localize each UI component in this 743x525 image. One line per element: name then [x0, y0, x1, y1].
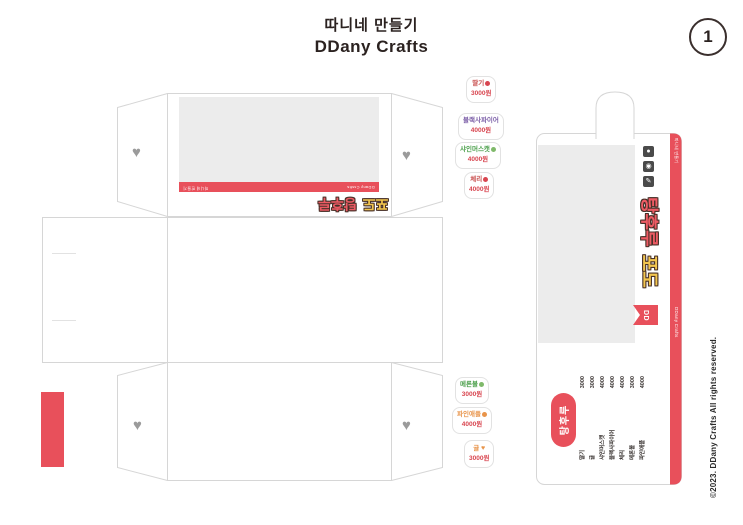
- menu-row: 딸기3000: [581, 376, 587, 460]
- lid-window: [179, 97, 379, 182]
- speech-bubble-icon: ●: [643, 146, 654, 157]
- pineapple-icon: [482, 412, 487, 417]
- muscat-icon: [491, 147, 496, 152]
- copyright-notice: ©2023. DDany Crafts All rights reserved.: [707, 328, 721, 498]
- side-stripe-top-text: 따니네 만들기: [671, 138, 682, 172]
- lid-label-grape: 포도: [363, 194, 389, 214]
- camera-icon: ◉: [643, 161, 654, 172]
- price-sticker-melon: 메론볼 3000원: [455, 377, 489, 404]
- strawberry-icon: [485, 81, 490, 86]
- page-title: 따니네 만들기 DDany Crafts: [0, 17, 743, 57]
- menu-row: 메론볼3000: [631, 376, 637, 460]
- price-sticker-strawberry: 딸기 3000원: [466, 76, 496, 103]
- page-title-english: DDany Crafts: [0, 36, 743, 57]
- cherry-icon: [483, 177, 488, 182]
- price-sticker-tangerine: 귤 ♥ 3000원: [464, 440, 494, 468]
- heart-icon: ♥: [133, 418, 142, 433]
- page-number-badge: 1: [689, 18, 727, 56]
- price-sticker-shine-muscat: 샤인머스캣 4000원: [455, 142, 501, 169]
- price-sticker-cherry: 체리 4000원: [464, 172, 494, 199]
- lid-product-label: 포도 탕후루: [318, 193, 416, 215]
- red-strip-piece: [41, 392, 64, 467]
- melon-icon: [479, 382, 484, 387]
- menu-row: 체리4000: [621, 376, 627, 460]
- price-sticker-black-sapphire: 블랙사파이어 4000원: [458, 113, 504, 140]
- heart-icon: ♥: [402, 148, 411, 163]
- menu-title: 탕후루: [551, 393, 576, 447]
- side-label-grape: 포도: [630, 255, 668, 288]
- page-title-korean: 따니네 만들기: [0, 17, 743, 36]
- side-panel-window: [538, 145, 635, 343]
- menu-row: 파인애플4000: [641, 376, 647, 460]
- lid-stripe-left-text: 따니네 만들기: [183, 185, 208, 191]
- tangerine-heart-icon: ♥: [481, 445, 485, 452]
- side-label-tanghulu: 탕후루: [630, 197, 668, 247]
- lid-stripe-right-text: DDany Crafts: [347, 185, 375, 190]
- heart-icon: ♥: [132, 145, 141, 160]
- heart-icon: ♥: [402, 418, 411, 433]
- menu-title-blob: 탕후루: [551, 393, 576, 447]
- pencil-icon: ✎: [643, 176, 654, 187]
- side-stripe-bottom-text: DDany Crafts: [671, 307, 682, 347]
- lid-label-tanghulu: 탕후루: [318, 194, 357, 214]
- brand-ribbon-text: DD: [642, 309, 649, 320]
- price-sticker-pineapple: 파인애플 4000원: [452, 407, 492, 434]
- price-menu: 딸기3000 귤3000 샤인머스캣4000 블랙사파이어4000 체리4000…: [581, 376, 647, 460]
- menu-row: 귤3000: [591, 376, 597, 460]
- menu-row: 블랙사파이어4000: [611, 376, 617, 460]
- lid-brand-stripe: 따니네 만들기 DDany Crafts: [179, 182, 379, 192]
- menu-row: 샤인머스캣4000: [601, 376, 607, 460]
